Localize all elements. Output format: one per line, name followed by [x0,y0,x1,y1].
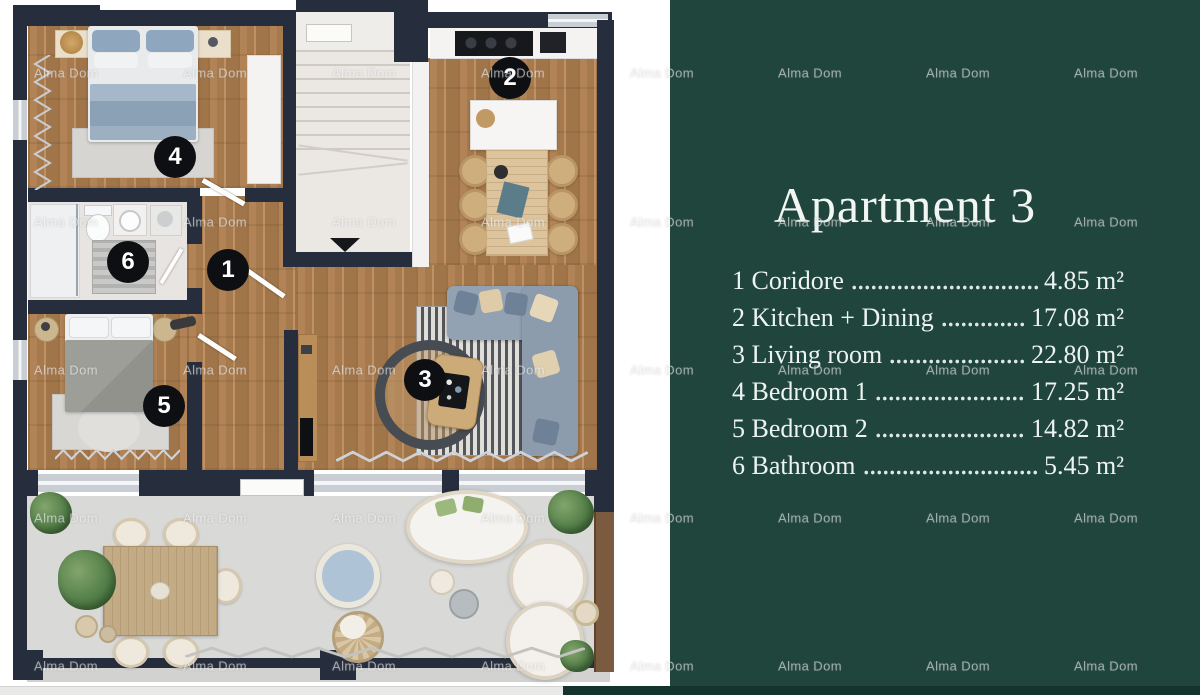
curtain-zigzag [55,448,180,461]
dining-chair [546,223,578,255]
room-area: 4.85 m² [1044,262,1124,299]
wall [594,470,614,512]
wall [28,188,200,202]
serving-tray [476,109,495,128]
closet [247,55,281,184]
potted-plant [30,492,72,534]
small-pot [99,625,117,643]
room-badge-5: 5 [143,385,185,427]
small-pot [75,615,98,638]
bed-double [88,26,198,142]
pillow [69,317,109,338]
cooktop [455,31,533,56]
room-label: 6 Bathroom [732,447,856,484]
dotted-leader [941,320,1026,329]
wall [100,10,296,26]
shower [30,204,80,298]
daybed-cushion [462,495,484,513]
pillow [504,292,529,317]
room-badge-4: 4 [154,136,196,178]
round-pouf-chair [316,544,380,608]
window [314,474,442,492]
plate [494,165,508,179]
pillow [94,53,138,68]
room-label: 3 Living room [732,336,882,373]
badge-number: 5 [157,392,170,420]
badge-number: 6 [121,248,134,276]
room-row: 4 Bedroom 117.25 m² [732,373,1124,410]
room-row: 5 Bedroom 214.82 m² [732,410,1124,447]
potted-plant [58,550,116,610]
wall [245,188,283,202]
washer-drum [157,211,173,227]
room-badge-2: 2 [489,57,531,99]
wall [283,252,412,267]
bed-double [65,314,153,412]
curtain-zigzag [30,55,54,190]
curtain-zigzag [336,450,588,463]
terrace-chair [113,636,149,668]
dotted-leader [875,394,1026,403]
room-row: 2 Kitchen + Dining17.08 m² [732,299,1124,336]
room-label: 5 Bedroom 2 [732,410,868,447]
apartment-title: Apartment 3 [670,176,1140,234]
window [13,100,27,140]
room-area: 22.80 m² [1031,336,1124,373]
room-badge-3: 3 [404,359,446,401]
badge-number: 4 [168,143,181,171]
room-area: 17.25 m² [1031,373,1124,410]
decor-item [301,345,312,354]
pillow [478,288,503,313]
wall [187,288,202,314]
wall [139,470,236,496]
terrace-corner [13,650,43,680]
wall [597,20,614,470]
dried-plant [60,31,83,54]
room-badge-6: 6 [107,241,149,283]
room-area: 5.45 m² [1044,447,1124,484]
pillow [148,53,192,68]
lamp [41,322,50,331]
room-row: 1 Coridore4.85 m² [732,262,1124,299]
wall [13,470,38,496]
room-label: 2 Kitchen + Dining [732,299,934,336]
room-row: 3 Living room22.80 m² [732,336,1124,373]
tv-half-wall [284,330,298,470]
blanket [90,84,196,140]
blanket [65,340,153,412]
kitchen-sink [540,32,566,53]
bottom-strip-gray [0,686,563,695]
wicker-chair-cushion [340,615,366,639]
shower-glass [76,204,78,296]
stair-side-wall [412,62,429,267]
dotted-leader [875,431,1026,440]
toilet-bowl [86,214,110,242]
room-badge-1: 1 [207,249,249,291]
listing-image: 1 2 3 4 5 6 Apartment 3 1 Coridore4.85 m… [0,0,1200,695]
room-area-list: 1 Coridore4.85 m² 2 Kitchen + Dining17.0… [732,262,1124,484]
stair-treads [296,50,410,150]
wall [283,10,296,267]
window [13,340,27,380]
side-table [429,569,455,595]
wall [28,300,187,314]
potted-plant [548,490,594,534]
dotted-leader [863,468,1039,477]
wall [394,0,428,62]
curtain-zigzag [185,646,585,659]
terrace-rail [594,512,614,672]
sink [119,210,141,232]
lamp [208,37,218,47]
pillow [146,30,194,52]
pillow [111,317,151,338]
pillow [532,418,560,446]
dotted-leader [851,283,1039,292]
wall [187,196,202,244]
window [38,474,139,492]
dining-chair [546,155,578,187]
wall [296,0,394,12]
wall [187,362,202,470]
badge-number: 1 [221,256,234,284]
dining-chair [546,189,578,221]
pillow [92,30,140,52]
dotted-leader [889,357,1026,366]
room-area: 14.82 m² [1031,410,1124,447]
stair-direction-arrow [330,238,360,252]
side-table [449,589,479,619]
sliding-door-leaf [240,479,304,496]
room-label: 1 Coridore [732,262,844,299]
room-label: 4 Bedroom 1 [732,373,868,410]
tv [300,418,313,456]
room-area: 17.08 m² [1031,299,1124,336]
badge-number: 2 [503,64,516,92]
room-row: 6 Bathroom5.45 m² [732,447,1124,484]
centerpiece [150,582,170,600]
bottom-strip-green [563,686,1200,695]
entry-door [306,24,352,42]
accent-ring [573,600,599,626]
floor-plan: 1 2 3 4 5 6 [0,0,670,686]
badge-number: 3 [418,366,431,394]
info-panel: Apartment 3 1 Coridore4.85 m² 2 Kitchen … [670,0,1200,686]
